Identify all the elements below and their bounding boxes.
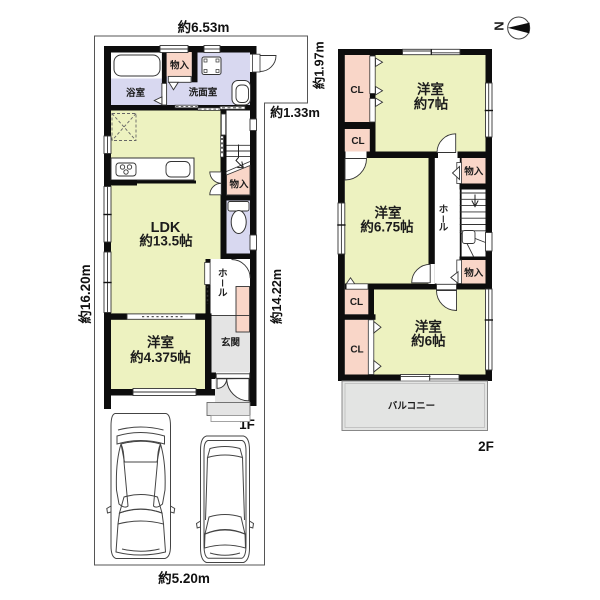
- svg-text:物入: 物入: [229, 179, 249, 191]
- svg-text:洗面室: 洗面室: [189, 87, 218, 99]
- svg-text:ホ: ホ: [439, 205, 449, 216]
- svg-text:約14.22m: 約14.22m: [269, 269, 284, 324]
- svg-text:約6.53m: 約6.53m: [178, 19, 230, 35]
- svg-text:浴室: 浴室: [126, 87, 146, 99]
- svg-text:CL: CL: [350, 85, 363, 96]
- svg-text:2F: 2F: [478, 439, 494, 454]
- svg-text:約6.75帖: 約6.75帖: [360, 219, 414, 235]
- svg-text:洋室: 洋室: [147, 334, 174, 350]
- svg-text:物入: 物入: [170, 60, 190, 72]
- svg-text:約1.33m: 約1.33m: [270, 105, 320, 120]
- svg-text:物入: 物入: [464, 166, 484, 178]
- svg-text:洋室: 洋室: [415, 319, 442, 335]
- svg-text:N: N: [491, 21, 506, 30]
- svg-text:約1.97m: 約1.97m: [312, 41, 327, 89]
- svg-text:約6帖: 約6帖: [411, 333, 446, 349]
- svg-text:CL: CL: [350, 345, 363, 356]
- svg-text:約7帖: 約7帖: [414, 96, 449, 112]
- svg-text:洋室: 洋室: [417, 81, 444, 97]
- svg-text:CL: CL: [350, 297, 363, 308]
- svg-text:約13.5帖: 約13.5帖: [139, 233, 193, 249]
- svg-text:ル: ル: [218, 288, 228, 299]
- svg-text:約5.20m: 約5.20m: [158, 570, 210, 586]
- svg-text:CL: CL: [351, 136, 364, 147]
- svg-text:物入: 物入: [464, 267, 484, 279]
- svg-text:約16.20m: 約16.20m: [77, 264, 93, 323]
- svg-text:ホ: ホ: [218, 269, 228, 280]
- svg-text:ル: ル: [439, 223, 449, 234]
- svg-text:約4.375帖: 約4.375帖: [130, 349, 191, 365]
- svg-text:バルコニー: バルコニー: [388, 400, 435, 412]
- svg-text:洋室: 洋室: [375, 205, 402, 221]
- svg-text:玄関: 玄関: [221, 337, 240, 349]
